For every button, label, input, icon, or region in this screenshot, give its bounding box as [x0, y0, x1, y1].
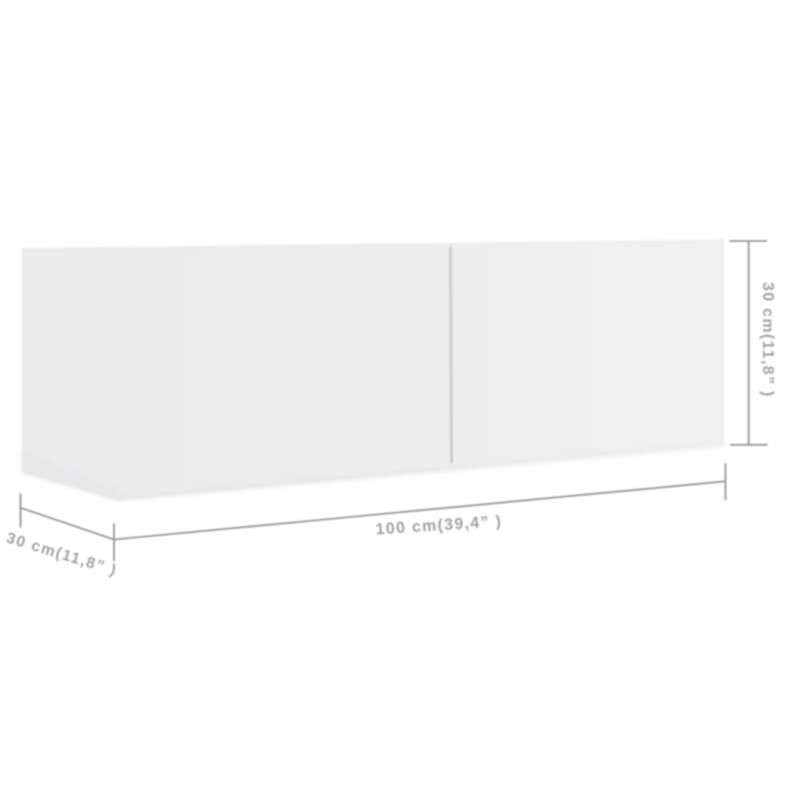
svg-text:30 cm(11,8” ): 30 cm(11,8” ): [759, 282, 776, 398]
